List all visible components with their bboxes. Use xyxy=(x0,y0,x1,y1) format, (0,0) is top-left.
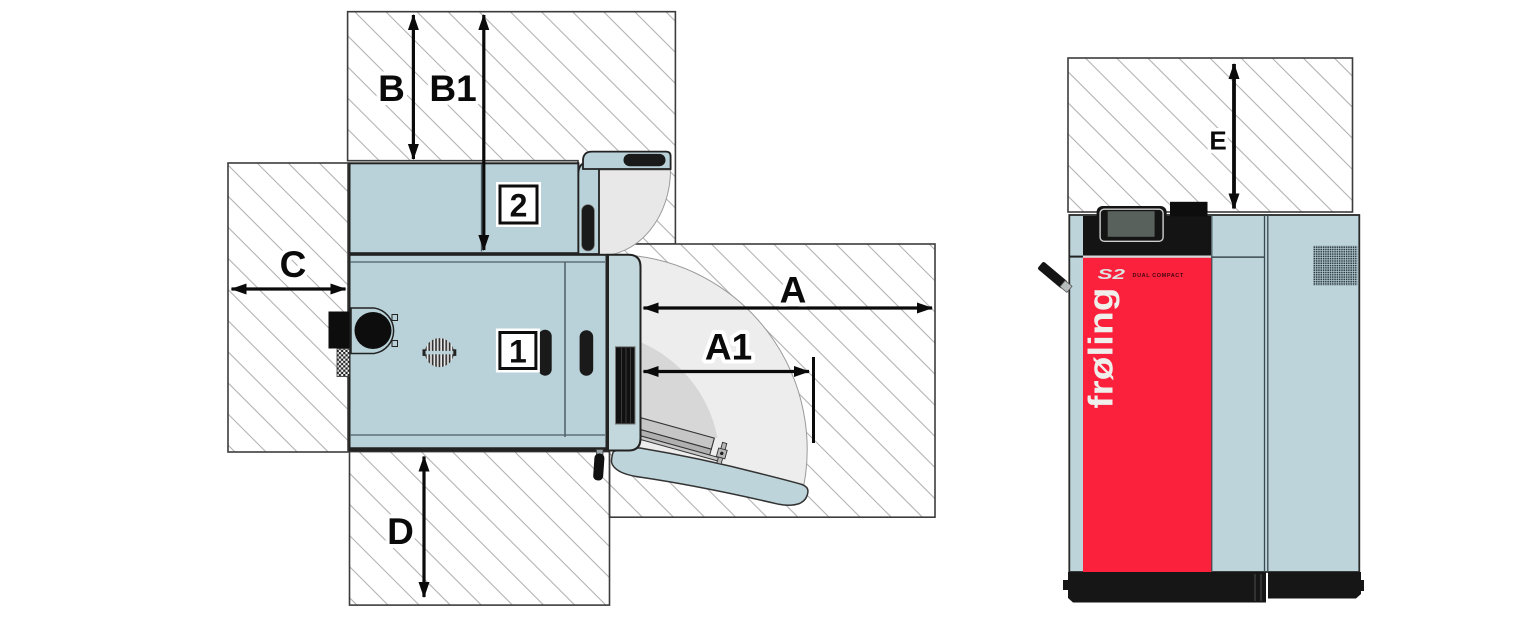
svg-text:E: E xyxy=(1209,126,1226,156)
svg-text:D: D xyxy=(387,511,414,552)
svg-text:A1: A1 xyxy=(705,327,752,368)
svg-text:B1: B1 xyxy=(429,68,476,109)
svg-text:C: C xyxy=(280,244,307,285)
svg-text:A: A xyxy=(780,270,807,311)
svg-text:DUAL COMPACT: DUAL COMPACT xyxy=(1133,273,1184,279)
svg-text:B: B xyxy=(378,68,405,109)
svg-text:1: 1 xyxy=(509,334,527,370)
svg-text:frøling: frøling xyxy=(1083,288,1121,409)
svg-text:2: 2 xyxy=(510,188,528,224)
svg-text:S2: S2 xyxy=(1098,266,1126,283)
